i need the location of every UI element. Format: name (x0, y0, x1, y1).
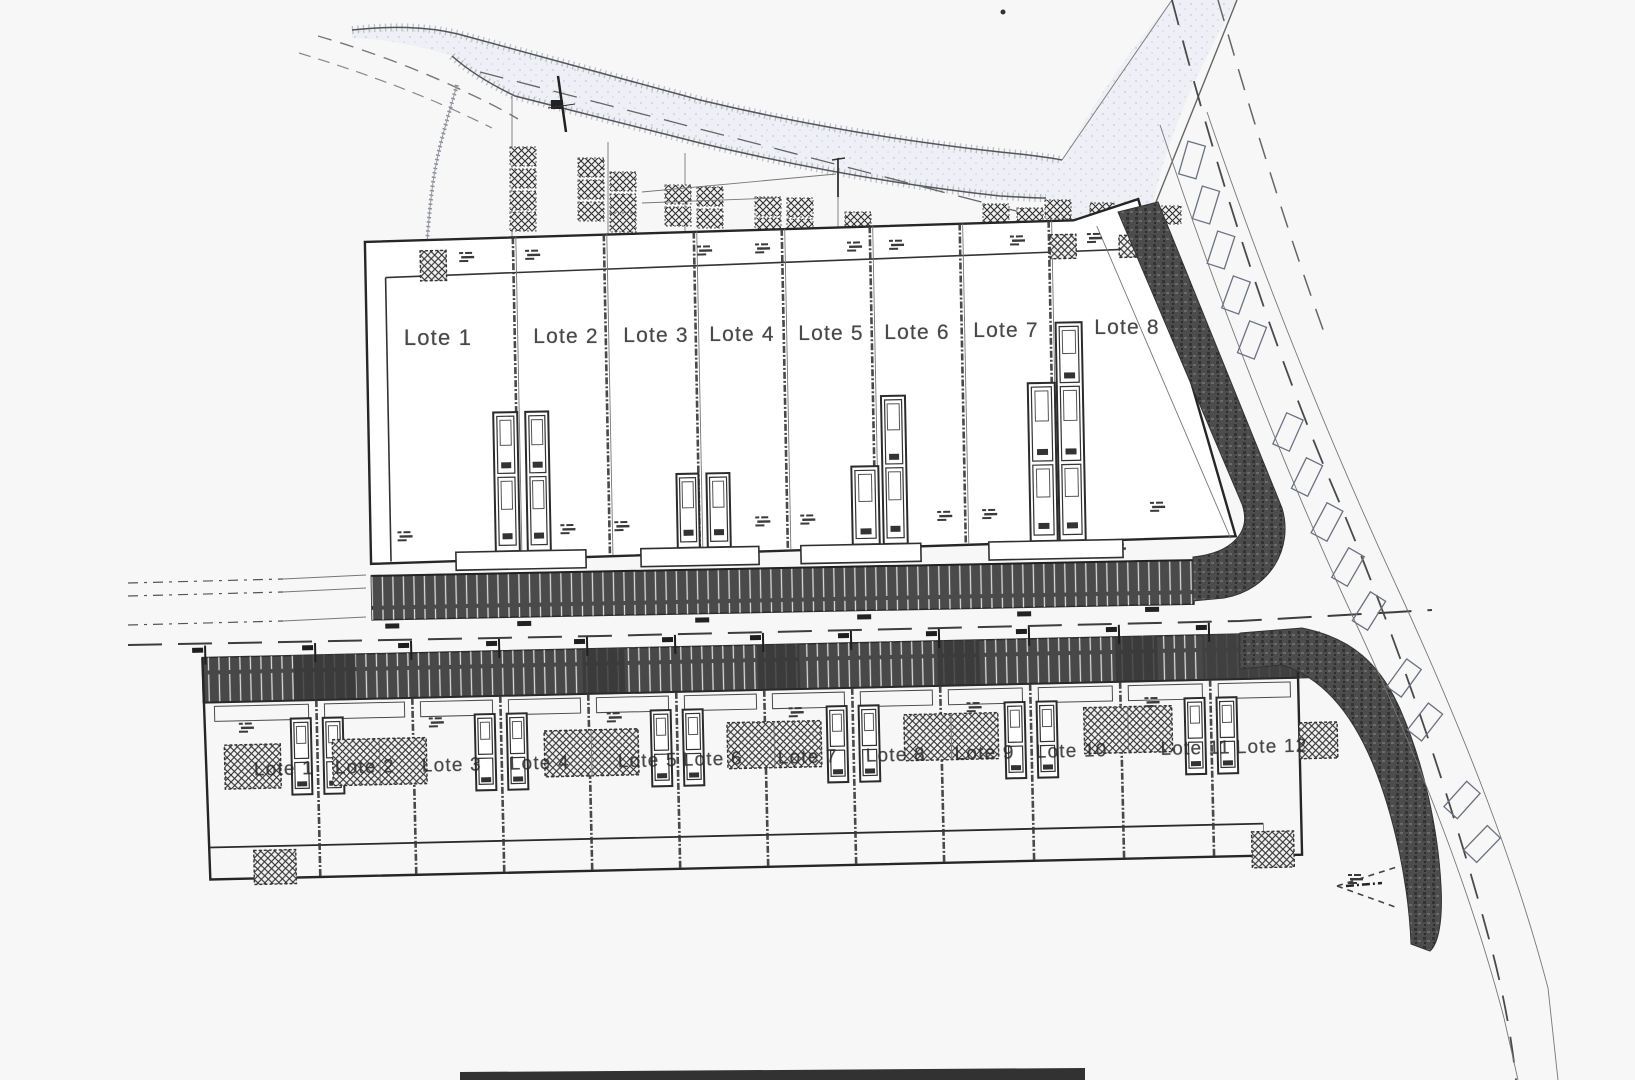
lower-lot-label-6: Lote 6 (683, 748, 744, 771)
lower-lot-label-8: Lote 8 (865, 744, 926, 767)
lower-lot-label-1: Lote 1 (254, 758, 315, 781)
lower-lot-label-12: Lote 12 (1235, 736, 1307, 760)
lower-lot-label-9: Lote 9 (954, 742, 1015, 765)
lower-lot-label-2: Lote 2 (335, 756, 396, 779)
lower-lot-label-4: Lote 4 (510, 752, 571, 775)
lower-lot-label-5: Lote 5 (618, 750, 679, 773)
lower-lot-labels: Lote 1 Lote 2 Lote 3 Lote 4 Lote 5 Lote … (0, 0, 1635, 1080)
lower-lot-label-11: Lote 11 (1160, 737, 1231, 761)
lower-lot-label-3: Lote 3 (422, 754, 483, 777)
lower-lot-label-7: Lote 7 (777, 746, 838, 769)
lower-lot-label-10: Lote 10 (1036, 740, 1108, 764)
site-plan-scan: Lote 1 Lote 2 Lote 3 Lote 4 Lote 5 Lote … (0, 0, 1635, 1080)
